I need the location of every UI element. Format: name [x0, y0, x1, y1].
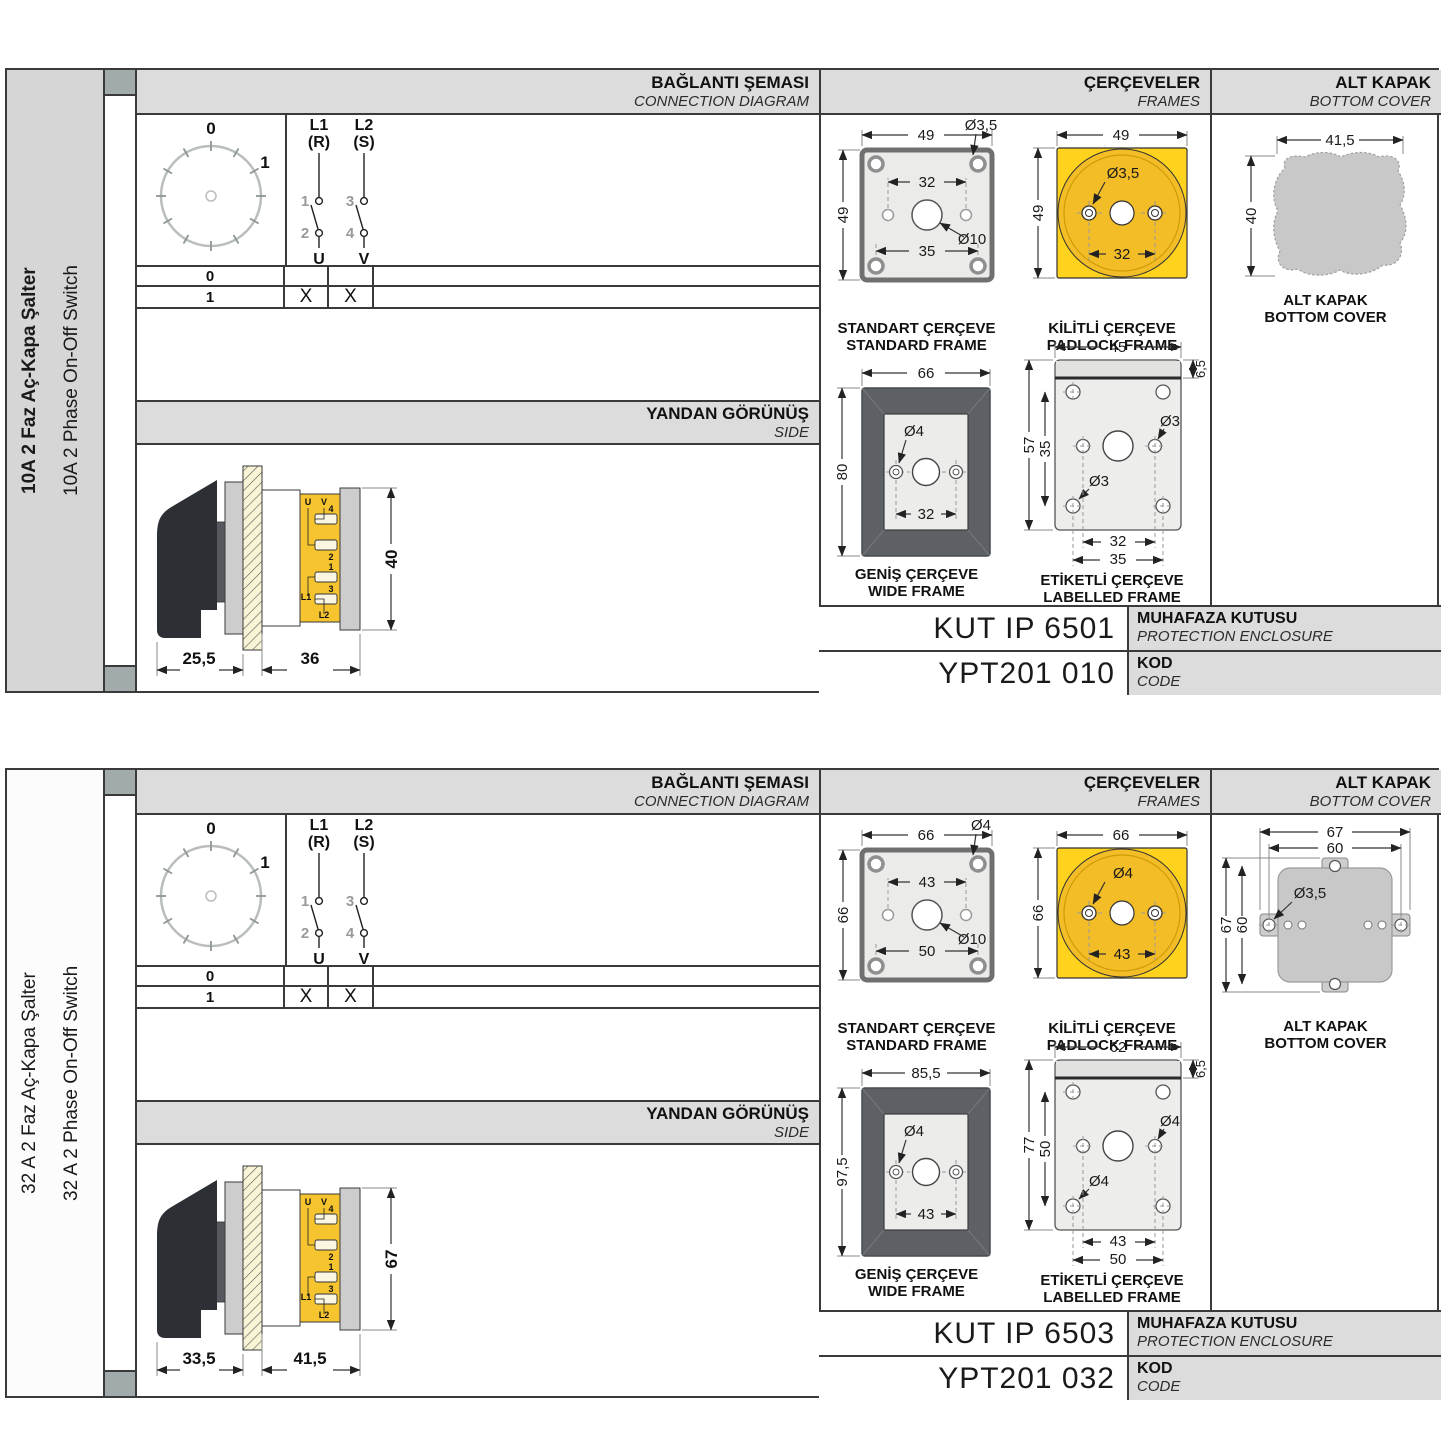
dim-hole-upper: Ø4 [1160, 1113, 1180, 1130]
row1-position: 1 [137, 287, 285, 307]
dial-position-0: 0 [206, 819, 215, 838]
terminal-3: 3 [346, 193, 354, 210]
dim-width: 66 [918, 827, 935, 844]
dim-span-outer: 35 [1110, 551, 1127, 568]
end-cap [340, 488, 360, 630]
enclosure-row: KUT IP 6501 MUHAFAZA KUTUSU PROTECTION E… [819, 605, 1441, 650]
row0-rest [374, 967, 819, 985]
side-view-header: YANDAN GÖRÜNÜŞ SIDE [137, 400, 819, 445]
dim-height: 66 [1030, 905, 1047, 922]
side-header-tr: YANDAN GÖRÜNÜŞ [137, 1104, 809, 1124]
side-view-drawing: U V 4 2 1 3 L1 L2 25,5 36 40 [147, 448, 567, 693]
header-connection-tr: BAĞLANTI ŞEMASI [137, 773, 809, 793]
caption-tr: GENİŞ ÇERÇEVE [819, 566, 1014, 583]
header-frames: ÇERÇEVELER FRAMES [819, 770, 1210, 815]
side-view-header: YANDAN GÖRÜNÜŞ SIDE [137, 1100, 819, 1145]
dim-height: 97,5 [834, 1157, 851, 1186]
caption-tr: ETİKETLİ ÇERÇEVE [1014, 1272, 1210, 1289]
product-section-10a: 10A 2 Faz Aç-Kapa Şalter 10A 2 Phase On-… [5, 68, 1439, 693]
divider-frames-left [819, 770, 821, 1396]
dim-front-depth: 33,5 [182, 1349, 215, 1368]
wide-frame-drawing: 66 80 Ø4 32 [822, 360, 1012, 565]
enclosure-row: KUT IP 6503 MUHAFAZA KUTUSU PROTECTION E… [819, 1310, 1441, 1355]
bottom-cover-drawing: 41,5 40 [1219, 128, 1439, 288]
spine-square-bottom [105, 665, 135, 691]
side-header-en: SIDE [137, 424, 809, 442]
phase-l1-label: L1 [310, 117, 329, 134]
output-v-label: V [359, 251, 370, 265]
dim-width: 45 [1110, 339, 1127, 356]
row1-rest [374, 287, 819, 307]
mounting-panel-hatched [243, 466, 262, 650]
dim-height: 49 [835, 207, 852, 224]
code-label-tr: KOD [1137, 1359, 1441, 1378]
row1-u: X [285, 987, 329, 1007]
spine-square-bottom [105, 1370, 135, 1396]
term-u: U [305, 497, 312, 507]
end-cap [340, 1188, 360, 1330]
product-title-column: 10A 2 Faz Aç-Kapa Şalter 10A 2 Phase On-… [7, 70, 105, 691]
row0-rest [374, 267, 819, 285]
terminal-4: 4 [346, 925, 355, 942]
dim-hole-span: 32 [1114, 246, 1131, 263]
dim-width: 66 [918, 365, 935, 382]
order-code-label: KOD CODE [1127, 1357, 1441, 1400]
dim-body-depth: 36 [301, 649, 320, 668]
header-bottom-cover: ALT KAPAK BOTTOM COVER [1210, 70, 1441, 115]
caption-tr: KİLİTLİ ÇERÇEVE [1014, 320, 1210, 337]
side-header-en: SIDE [137, 1124, 809, 1142]
caption-en: STANDARD FRAME [819, 1037, 1014, 1054]
dim-height: 49 [1030, 205, 1047, 222]
dim-height: 66 [835, 907, 852, 924]
order-code: YPT201 032 [819, 1357, 1127, 1400]
phase-l2-label: L2 [355, 117, 374, 134]
product-title-en: 10A 2 Phase On-Off Switch [61, 70, 83, 691]
dim-hole-lower: Ø3 [1089, 473, 1109, 490]
header-connection-en: CONNECTION DIAGRAM [137, 793, 809, 811]
dim-height: 40 [1243, 208, 1260, 225]
contact-l2 [356, 853, 367, 948]
dim-hole-span-top: 43 [919, 874, 936, 891]
row1-v: X [329, 287, 374, 307]
dim-hole-span-v: 50 [1037, 1141, 1054, 1158]
term-1: 1 [328, 1262, 333, 1272]
term-v: V [321, 1197, 327, 1207]
contact-l1 [311, 853, 322, 948]
switch-handle [157, 1180, 217, 1338]
dim-hole: Ø4 [1113, 865, 1133, 882]
spine-column [105, 70, 137, 691]
dim-hole: Ø3,5 [1107, 165, 1140, 182]
dim-height: 40 [382, 550, 401, 569]
row0-u [285, 967, 329, 985]
dial-ticks [156, 141, 266, 251]
term-2: 2 [328, 552, 333, 562]
bottom-cover-caption: ALT KAPAK BOTTOM COVER [1210, 1018, 1441, 1052]
row1-v: X [329, 987, 374, 1007]
order-code: YPT201 010 [819, 652, 1127, 695]
side-header-tr: YANDAN GÖRÜNÜŞ [137, 404, 809, 424]
caption-en: LABELLED FRAME [1014, 1289, 1210, 1306]
header-frames-tr: ÇERÇEVELER [819, 73, 1200, 93]
terminal-3: 3 [346, 893, 354, 910]
labelled-frame-drawing: 45 6,5 57 35 Ø3 Ø3 32 35 [1017, 336, 1207, 571]
table-row-1: 1 X X [137, 287, 819, 309]
wide-frame-caption: GENİŞ ÇERÇEVE WIDE FRAME [819, 566, 1014, 600]
row0-u [285, 267, 329, 285]
product-title-column: 32 A 2 Faz Aç-Kapa Şalter 32 A 2 Phase O… [7, 770, 105, 1396]
dim-hole-span-bottom: 35 [919, 243, 936, 260]
row0-position: 0 [137, 967, 285, 985]
cover-body [1274, 153, 1406, 276]
enclosure-label-en: PROTECTION ENCLOSURE [1137, 1333, 1441, 1351]
wide-frame-caption: GENİŞ ÇERÇEVE WIDE FRAME [819, 1266, 1014, 1300]
enclosure-label-en: PROTECTION ENCLOSURE [1137, 628, 1441, 646]
dim-hole-span-v: 35 [1037, 441, 1054, 458]
caption-tr: STANDART ÇERÇEVE [819, 320, 1014, 337]
front-plate [225, 482, 243, 634]
term-4: 4 [328, 504, 333, 514]
contact-schematic: L1 (R) L2 (S) 1 2 3 4 U V [287, 115, 527, 265]
dim-body-depth: 41,5 [293, 1349, 326, 1368]
code-label-en: CODE [1137, 1378, 1441, 1396]
switch-body [262, 1190, 300, 1326]
dim-corner-hole: Ø3,5 [965, 118, 998, 134]
order-code-row: YPT201 010 KOD CODE [819, 650, 1441, 695]
dim-height: 80 [834, 464, 851, 481]
phase-s-label: (S) [353, 834, 374, 851]
caption-en: BOTTOM COVER [1210, 1035, 1441, 1052]
output-u-label: U [313, 251, 325, 265]
dim-span-outer: 50 [1110, 1251, 1127, 1268]
term-l1: L1 [301, 1292, 312, 1302]
dim-hole-span-bottom: 50 [919, 943, 936, 960]
row1-rest [374, 987, 819, 1007]
header-cover-en: BOTTOM COVER [1210, 93, 1431, 111]
table-row-0: 0 [137, 265, 819, 287]
dim-front-depth: 25,5 [182, 649, 215, 668]
dim-width: 62 [1110, 1039, 1127, 1056]
switch-position-dial: 0 1 [139, 118, 283, 263]
dim-strip-height: 6,5 [1193, 360, 1207, 378]
header-connection-tr: BAĞLANTI ŞEMASI [137, 73, 809, 93]
code-label-tr: KOD [1137, 654, 1441, 673]
dim-width: 49 [1113, 127, 1130, 144]
caption-tr: ETİKETLİ ÇERÇEVE [1014, 572, 1210, 589]
dim-hole-upper: Ø3 [1160, 413, 1180, 430]
phase-l2-label: L2 [355, 817, 374, 834]
phase-r-label: (R) [308, 834, 330, 851]
terminal-2: 2 [301, 225, 309, 242]
phase-r-label: (R) [308, 134, 330, 151]
dim-span-inner: 32 [1110, 533, 1127, 550]
dial-position-1: 1 [260, 153, 269, 172]
dim-center-hole: Ø10 [958, 931, 986, 948]
standard-frame-caption: STANDART ÇERÇEVE STANDARD FRAME [819, 320, 1014, 354]
term-3: 3 [328, 584, 333, 594]
dim-width: 85,5 [911, 1065, 940, 1082]
term-2: 2 [328, 1252, 333, 1262]
caption-en: WIDE FRAME [819, 1283, 1014, 1300]
dim-height: 77 [1021, 1137, 1038, 1154]
bottom-cover-drawing: 67 60 67 60 Ø3,5 [1212, 822, 1442, 1012]
terminal-4: 4 [346, 225, 355, 242]
label-strip [1056, 361, 1180, 377]
bottom-cover-caption: ALT KAPAK BOTTOM COVER [1210, 292, 1441, 326]
header-frames: ÇERÇEVELER FRAMES [819, 70, 1210, 115]
side-view-drawing: U V 4 2 1 3 L1 L2 33,5 41,5 67 [147, 1148, 567, 1393]
dim-hole-span: 32 [918, 506, 935, 523]
dim-hole-span-top: 32 [919, 174, 936, 191]
contact-l2 [356, 153, 367, 248]
labelled-frame-caption: ETİKETLİ ÇERÇEVE LABELLED FRAME [1014, 572, 1210, 606]
dial-position-1: 1 [260, 853, 269, 872]
product-title-tr: 10A 2 Faz Aç-Kapa Şalter [19, 70, 41, 691]
term-l2: L2 [319, 610, 330, 620]
switch-handle [157, 480, 217, 638]
dim-strip-height: 6,5 [1193, 1060, 1207, 1078]
dim-hole-span: 43 [1114, 946, 1131, 963]
spine-square-top [105, 770, 135, 796]
row0-position: 0 [137, 267, 285, 285]
dim-width-outer: 67 [1327, 824, 1344, 841]
header-frames-en: FRAMES [819, 93, 1200, 111]
front-plate [225, 1182, 243, 1334]
standard-frame-drawing: 66 66 Ø4 43 Ø10 50 [824, 818, 1014, 1016]
table-row-1: 1 X X [137, 987, 819, 1009]
header-connection-diagram: BAĞLANTI ŞEMASI CONNECTION DIAGRAM [137, 770, 819, 815]
term-v: V [321, 497, 327, 507]
term-l1: L1 [301, 592, 312, 602]
dim-hole: Ø4 [904, 1123, 924, 1140]
wide-frame-drawing: 85,5 97,5 Ø4 43 [822, 1060, 1012, 1265]
spine-column [105, 770, 137, 1396]
output-v-label: V [359, 951, 370, 965]
dim-corner-hole: Ø4 [971, 818, 991, 834]
caption-en: LABELLED FRAME [1014, 589, 1210, 606]
row0-v [329, 267, 374, 285]
caption-tr: ALT KAPAK [1210, 292, 1441, 309]
labelled-frame-caption: ETİKETLİ ÇERÇEVE LABELLED FRAME [1014, 1272, 1210, 1306]
dial-position-0: 0 [206, 119, 215, 138]
caption-tr: ALT KAPAK [1210, 1018, 1441, 1035]
code-label-en: CODE [1137, 673, 1441, 691]
phase-s-label: (S) [353, 134, 374, 151]
contact-table: 0 1 X X [137, 965, 819, 1009]
row1-u: X [285, 287, 329, 307]
switch-position-dial: 0 1 [139, 818, 283, 963]
enclosure-label-tr: MUHAFAZA KUTUSU [1137, 609, 1441, 628]
dim-center-hole: Ø10 [958, 231, 986, 248]
dim-hole: Ø4 [904, 423, 924, 440]
phase-l1-label: L1 [310, 817, 329, 834]
term-3: 3 [328, 1284, 333, 1294]
dim-height-outer: 67 [1218, 917, 1235, 934]
divider-cover-left [1210, 70, 1212, 607]
enclosure-label-tr: MUHAFAZA KUTUSU [1137, 1314, 1441, 1333]
padlock-frame-drawing: 66 66 Ø4 43 [1019, 820, 1209, 1018]
terminal-1: 1 [301, 193, 309, 210]
terminal-1: 1 [301, 893, 309, 910]
caption-en: BOTTOM COVER [1210, 309, 1441, 326]
header-frames-en: FRAMES [819, 793, 1200, 811]
table-row-0: 0 [137, 965, 819, 987]
dim-hole-lower: Ø4 [1089, 1173, 1109, 1190]
header-cover-tr: ALT KAPAK [1210, 773, 1431, 793]
caption-en: WIDE FRAME [819, 583, 1014, 600]
header-bottom-cover: ALT KAPAK BOTTOM COVER [1210, 770, 1441, 815]
term-4: 4 [328, 1204, 333, 1214]
row1-position: 1 [137, 987, 285, 1007]
header-connection-diagram: BAĞLANTI ŞEMASI CONNECTION DIAGRAM [137, 70, 819, 115]
dim-hole: Ø3,5 [1294, 885, 1327, 902]
dial-ticks [156, 841, 266, 951]
term-l2: L2 [319, 1310, 330, 1320]
row0-v [329, 967, 374, 985]
order-code-row: YPT201 032 KOD CODE [819, 1355, 1441, 1400]
dim-width: 41,5 [1325, 132, 1354, 149]
dim-width: 49 [918, 127, 935, 144]
dim-span-inner: 43 [1110, 1233, 1127, 1250]
caption-en: STANDARD FRAME [819, 337, 1014, 354]
header-cover-tr: ALT KAPAK [1210, 73, 1431, 93]
padlock-frame-drawing: 49 49 Ø3,5 32 [1019, 120, 1209, 318]
label-strip [1056, 1061, 1180, 1077]
product-title-en: 32 A 2 Phase On-Off Switch [61, 770, 83, 1396]
standard-frame-drawing: 49 49 Ø3,5 32 Ø10 35 [824, 118, 1014, 316]
dim-width: 66 [1113, 827, 1130, 844]
dim-height: 57 [1021, 437, 1038, 454]
contact-l1 [311, 153, 322, 248]
contact-table: 0 1 X X [137, 265, 819, 309]
mounting-panel-hatched [243, 1166, 262, 1350]
caption-tr: GENİŞ ÇERÇEVE [819, 1266, 1014, 1283]
standard-frame-caption: STANDART ÇERÇEVE STANDARD FRAME [819, 1020, 1014, 1054]
term-u: U [305, 1197, 312, 1207]
enclosure-code: KUT IP 6503 [819, 1312, 1127, 1355]
term-1: 1 [328, 562, 333, 572]
dim-height: 67 [382, 1250, 401, 1269]
product-section-32a: 32 A 2 Faz Aç-Kapa Şalter 32 A 2 Phase O… [5, 768, 1439, 1398]
product-title-tr: 32 A 2 Faz Aç-Kapa Şalter [19, 770, 41, 1396]
spine-square-top [105, 70, 135, 96]
header-frames-tr: ÇERÇEVELER [819, 773, 1200, 793]
switch-body [262, 490, 300, 626]
labelled-frame-drawing: 62 6,5 77 50 Ø4 Ø4 43 50 [1017, 1036, 1207, 1271]
header-cover-en: BOTTOM COVER [1210, 793, 1431, 811]
dim-width-inner: 60 [1327, 840, 1344, 857]
dim-height-inner: 60 [1234, 917, 1251, 934]
enclosure-label: MUHAFAZA KUTUSU PROTECTION ENCLOSURE [1127, 1312, 1441, 1355]
contact-schematic: L1 (R) L2 (S) 1 2 3 4 U V [287, 815, 527, 965]
caption-tr: STANDART ÇERÇEVE [819, 1020, 1014, 1037]
enclosure-code: KUT IP 6501 [819, 607, 1127, 650]
enclosure-label: MUHAFAZA KUTUSU PROTECTION ENCLOSURE [1127, 607, 1441, 650]
output-u-label: U [313, 951, 325, 965]
terminal-2: 2 [301, 925, 309, 942]
caption-tr: KİLİTLİ ÇERÇEVE [1014, 1020, 1210, 1037]
dim-hole-span: 43 [918, 1206, 935, 1223]
order-code-label: KOD CODE [1127, 652, 1441, 695]
header-connection-en: CONNECTION DIAGRAM [137, 93, 809, 111]
